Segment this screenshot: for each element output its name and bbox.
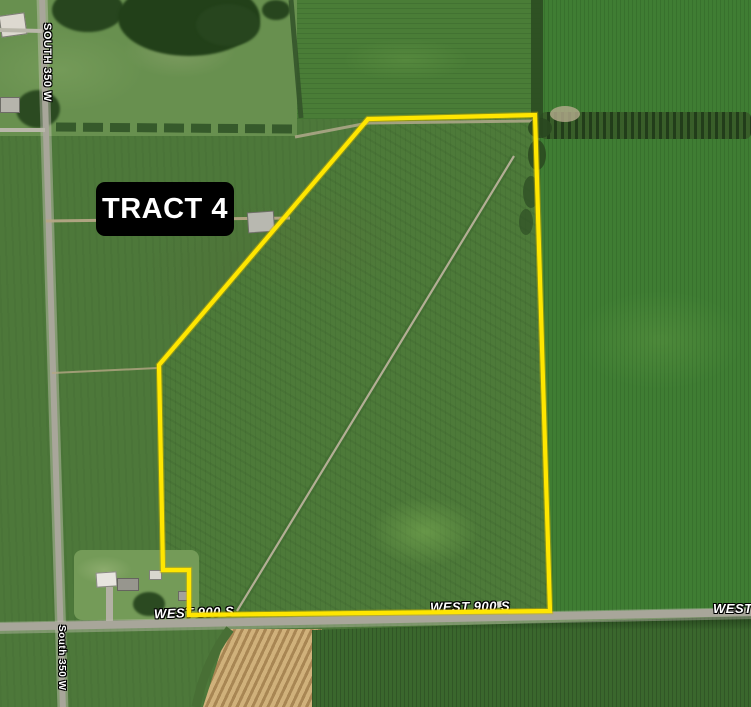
boundary-overlay [0, 0, 751, 707]
aerial-map: WEST 900 S WEST 900 S WEST 900 S TRACT 4… [0, 0, 751, 707]
tract-label-box: TRACT 4 [96, 182, 234, 236]
tract-label-text: TRACT 4 [102, 193, 228, 226]
road-label-south-350w-upper: SOUTH 350 W [41, 23, 53, 102]
road-label-south-350w-lower: South 350 W [56, 625, 67, 691]
